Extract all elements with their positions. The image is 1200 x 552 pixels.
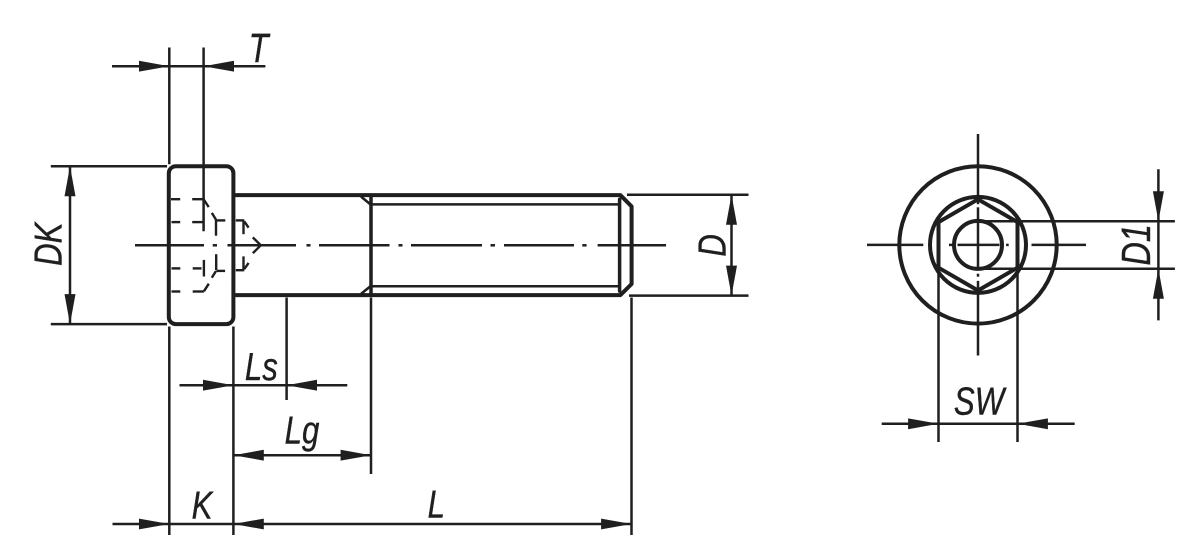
svg-text:Ls: Ls — [245, 346, 278, 389]
svg-text:DK: DK — [27, 221, 70, 266]
svg-text:D: D — [691, 234, 734, 257]
svg-text:K: K — [192, 484, 214, 527]
svg-text:L: L — [428, 483, 445, 526]
svg-text:D1: D1 — [1114, 224, 1159, 265]
svg-text:Lg: Lg — [285, 409, 320, 452]
svg-text:T: T — [249, 25, 271, 70]
svg-text:SW: SW — [954, 380, 1007, 423]
